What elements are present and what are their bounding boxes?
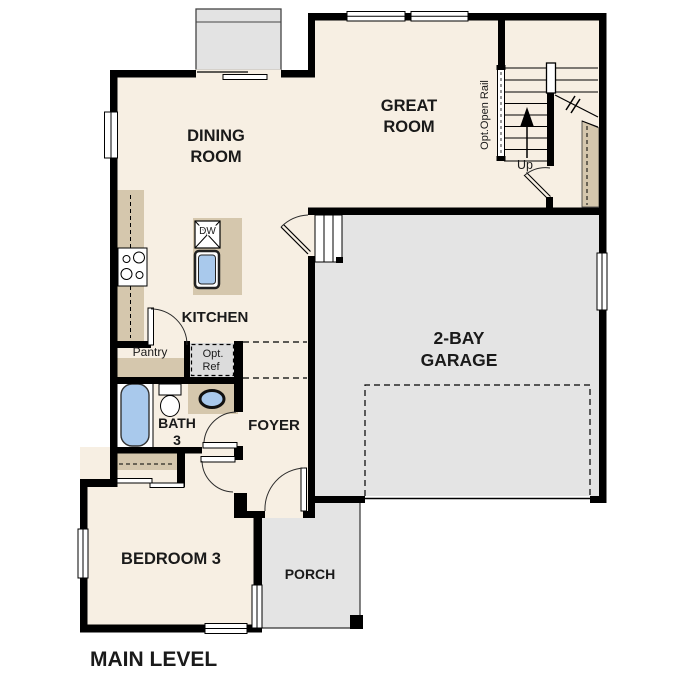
opt-ref-label: Opt. [203,348,224,360]
wall [110,447,202,454]
bay-window-sash [223,75,267,80]
cooktop [118,248,147,286]
bay-window [195,9,281,80]
wall [308,496,365,503]
wall [184,341,190,377]
bath-label: BATH [158,415,196,431]
pantry-door-leaf [148,308,154,345]
toilet [159,384,181,417]
stair-newel [547,63,556,93]
pantry-label: Pantry [133,345,168,359]
opt-ref-label2: Ref [202,361,220,373]
wall [498,13,505,68]
closet-shelf [117,453,177,470]
garage-label: 2-BAY [434,328,485,348]
landing-steps [315,215,342,262]
garage-label2: GARAGE [421,350,498,370]
island-sink [195,251,219,288]
floor-plan-page: DW [0,0,687,687]
entry-door-leaf [301,468,307,511]
kitchen-label: KITCHEN [182,309,249,326]
foyer-label: FOYER [248,417,300,434]
bedroom-floor [80,447,262,632]
garage-door-opening [365,496,590,503]
pantry-shelf [117,358,184,377]
wall [234,511,265,518]
toilet-tank [159,384,181,395]
open-rail-label: Opt.Open Rail [479,80,491,150]
garage-landing [315,215,343,263]
porch-post [350,615,363,629]
bathtub [117,380,153,449]
wall [110,377,243,384]
wall [590,496,607,503]
wall [308,13,315,78]
dining-room-label: DINING [187,127,245,145]
great-room-label2: ROOM [383,118,434,136]
bathtub-basin [121,384,149,446]
wall [234,341,243,377]
wall [234,384,243,412]
up-label: Up [517,158,533,172]
understair-closet [582,121,599,207]
dishwasher: DW [195,221,220,248]
bedroom-label: BEDROOM 3 [121,550,221,568]
bath-door-leaf [203,443,237,449]
plan-title: MAIN LEVEL [90,648,217,671]
wall [308,208,606,216]
bay-window-body [196,9,281,70]
wall [110,70,196,78]
stair-divider-wall [547,93,554,166]
bedroom-door-leaf [201,457,235,463]
toilet-bowl [161,396,180,417]
rail-cap-bottom [497,156,506,161]
dining-room-label2: ROOM [190,148,241,166]
vanity-sink [200,391,224,408]
porch-label: PORCH [285,566,336,582]
closet-bypass-door [150,483,184,488]
island-sink-basin [199,255,216,284]
wall [308,256,315,518]
dishwasher-label: DW [199,226,216,237]
closet-bypass-door [117,479,152,484]
door-jamb [336,257,343,263]
wall [177,447,185,487]
bath-label2: 3 [173,432,181,448]
great-room-floor [308,13,606,215]
great-room-label: GREAT [381,97,438,115]
floor-plan: DW [0,0,687,687]
